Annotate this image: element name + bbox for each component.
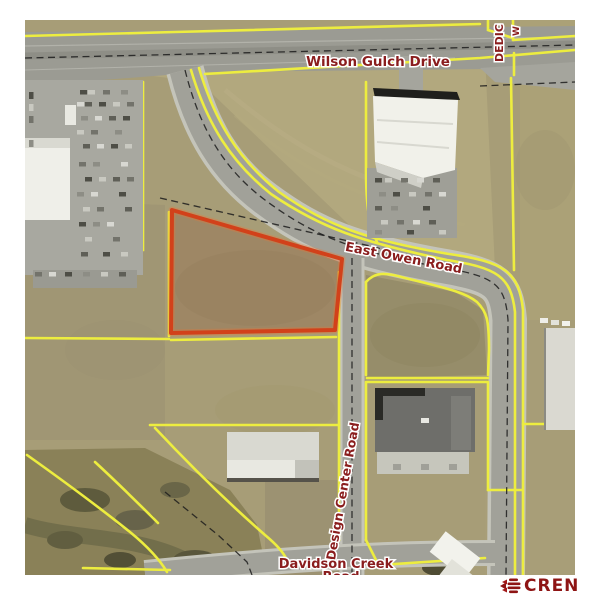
building-right-edge [540, 318, 575, 430]
cren-logo-text: CREN [524, 578, 579, 595]
listing-map-image: Wilson Gulch Drive East Owen Road Design… [0, 0, 600, 600]
building-top-right-retail [367, 88, 460, 238]
building-bottom-middle [227, 432, 319, 482]
label-dedication-partial: DEDIC [493, 24, 506, 62]
label-davidson-creek-road: Road [322, 570, 359, 575]
building-top-left-retail [25, 80, 143, 288]
aerial-map: Wilson Gulch Drive East Owen Road Design… [25, 20, 575, 575]
label-wilson-gulch-drive: Wilson Gulch Drive [306, 54, 450, 70]
cren-logo-icon [500, 576, 522, 596]
building-bottom-right-industrial [375, 388, 475, 474]
label-dedication-partial-2: W [512, 26, 522, 36]
cren-logo: CREN [500, 574, 600, 598]
